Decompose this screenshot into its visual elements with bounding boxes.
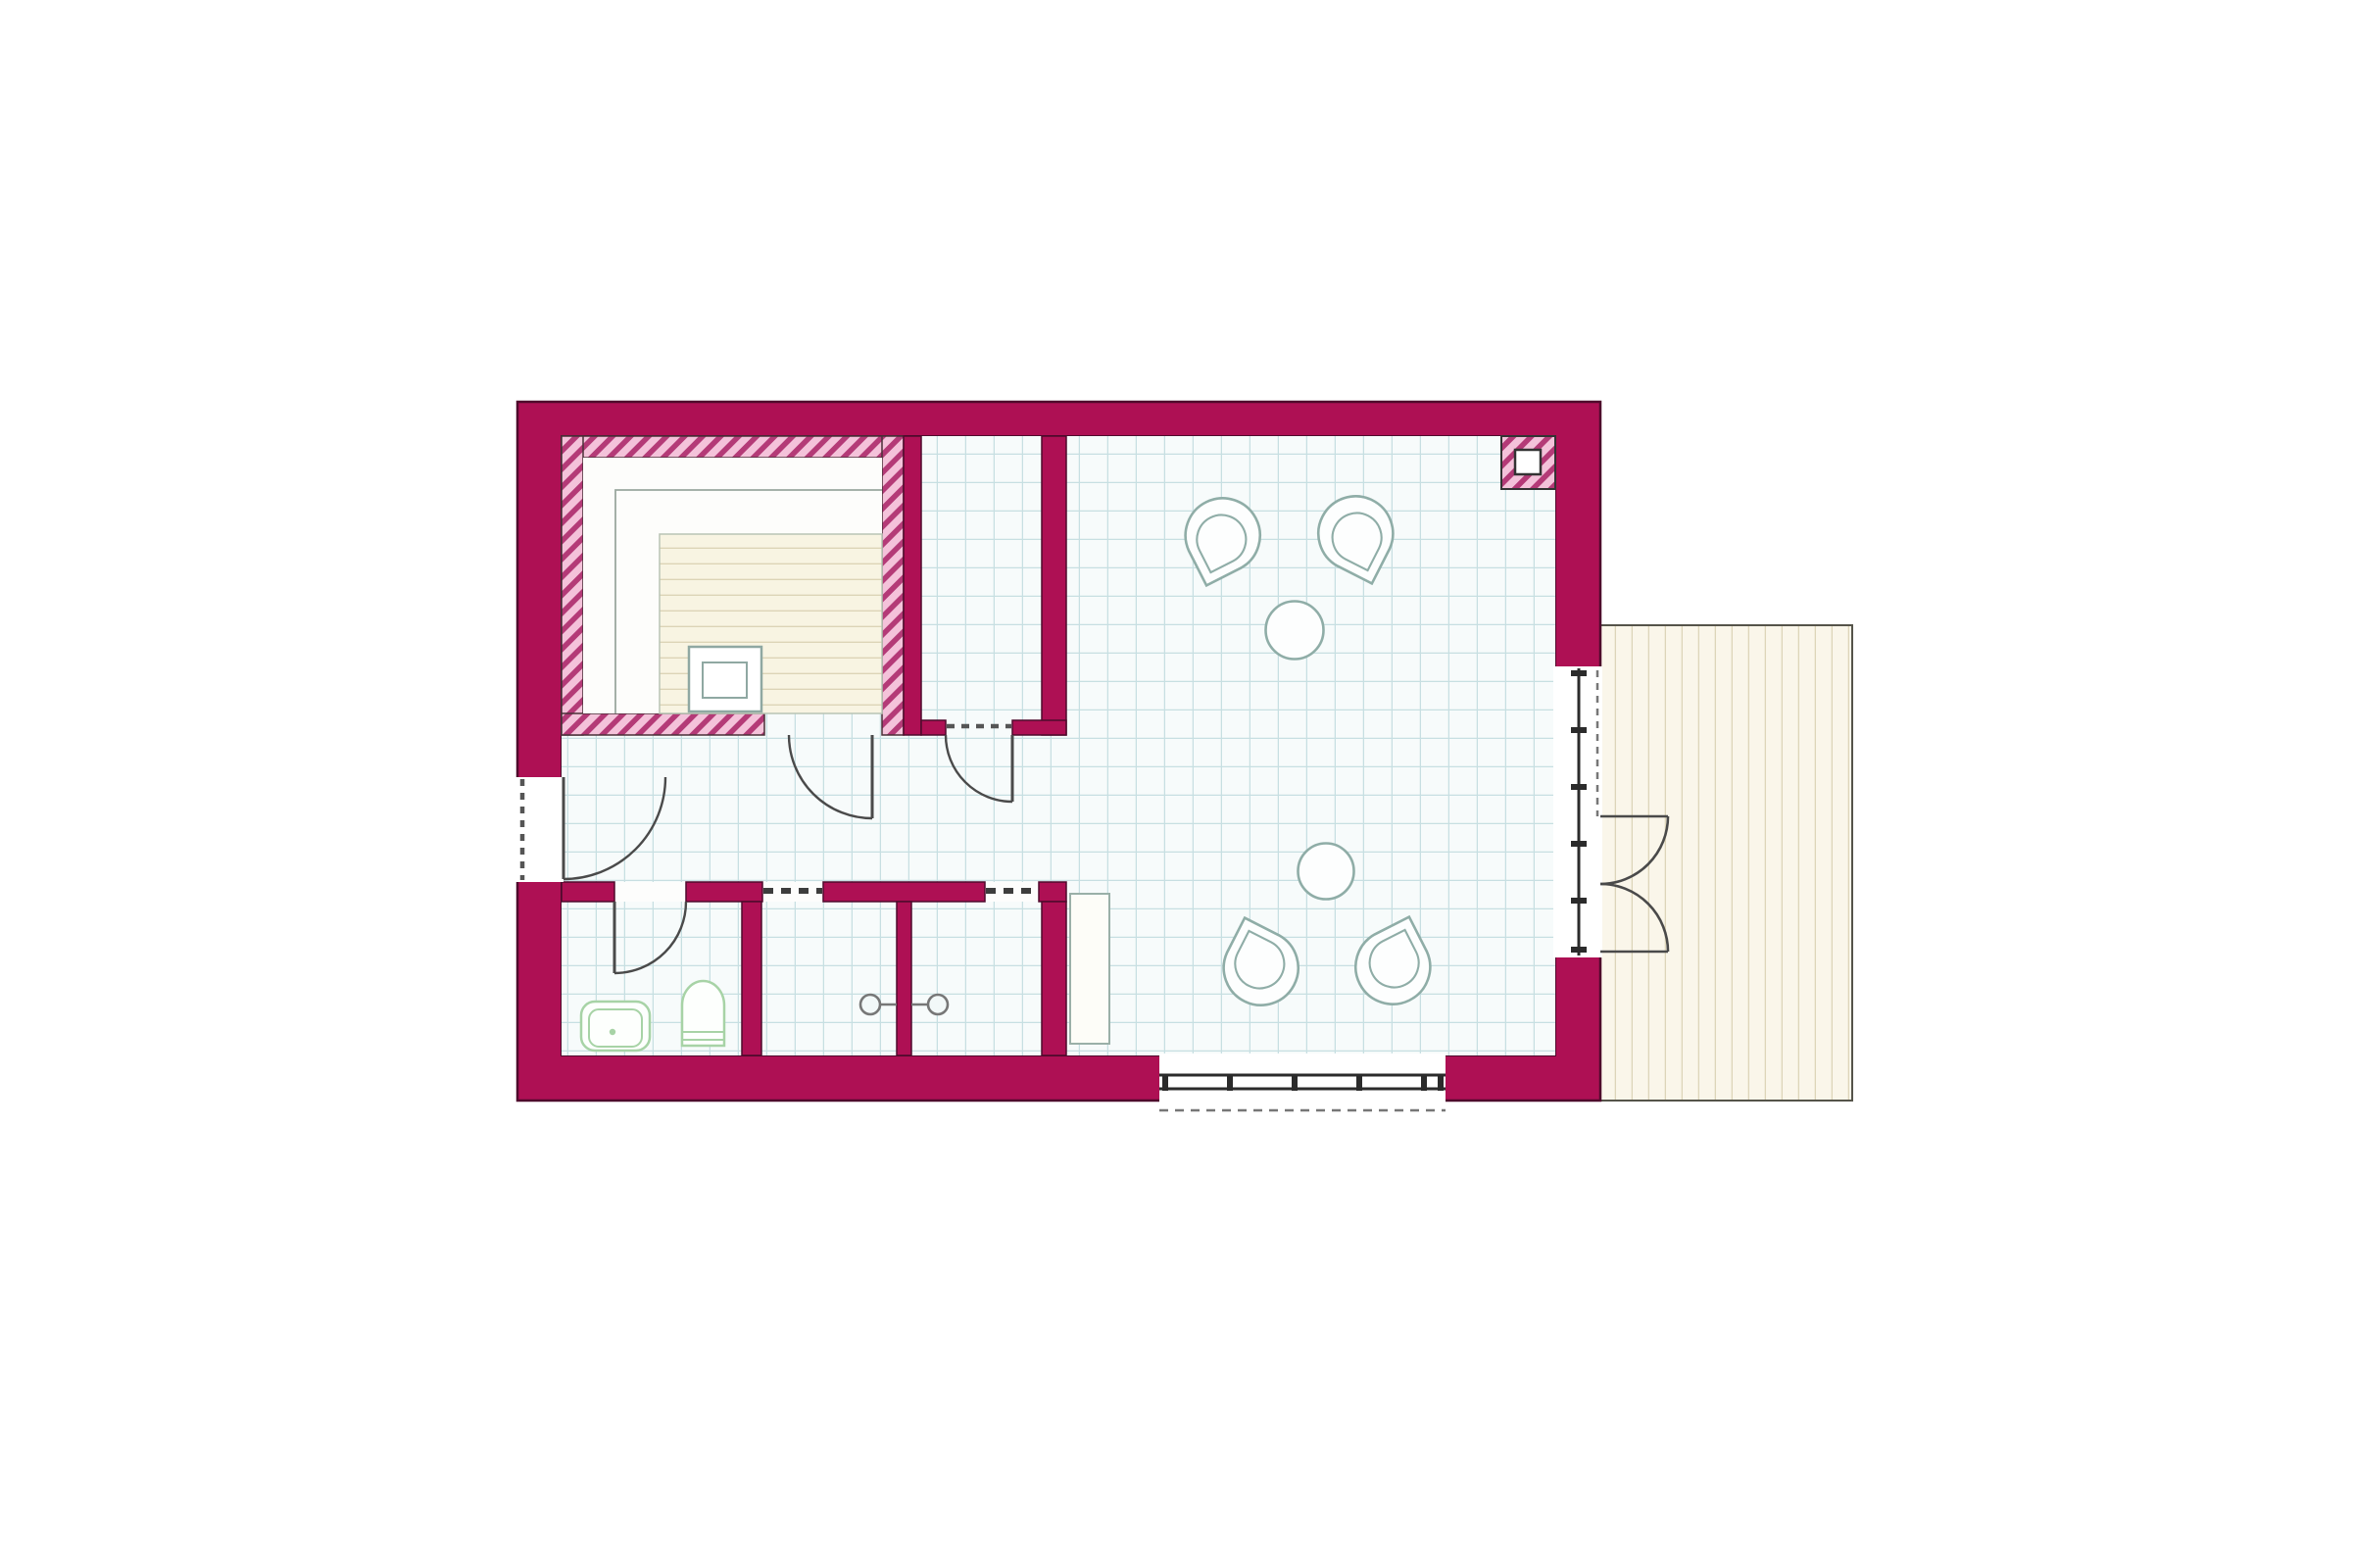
- main-room-floor: [1066, 436, 1555, 1055]
- hallway-floor: [562, 735, 1066, 882]
- sauna-hatched-wall-left: [562, 436, 583, 735]
- sauna-heater: [689, 647, 761, 711]
- terrace-deck: [1600, 625, 1852, 1101]
- shower-room-right-wall: [1042, 436, 1066, 735]
- sauna-hatched-wall-right: [882, 436, 904, 735]
- stall-mainroom-partition: [1042, 902, 1066, 1055]
- sauna-hatched-wall-top: [562, 436, 904, 458]
- round-table: [1266, 602, 1324, 660]
- bathroom-stall-partition: [742, 902, 761, 1055]
- floor-plan-page: [0, 0, 2353, 1568]
- sauna-partition-wall: [904, 436, 921, 735]
- floor-plan-drawing: [0, 0, 2353, 1568]
- sauna-hatched-wall-bottom: [562, 713, 764, 735]
- shower-room-floor: [921, 436, 1042, 720]
- bottom-window-opening: [1159, 1053, 1446, 1102]
- toilet: [682, 981, 724, 1046]
- round-table: [1299, 844, 1354, 900]
- stall-partition: [897, 902, 911, 1055]
- corner-column: [1501, 436, 1555, 489]
- wall-bench: [1070, 894, 1109, 1044]
- sink: [581, 1002, 650, 1051]
- sauna-room: [562, 436, 921, 735]
